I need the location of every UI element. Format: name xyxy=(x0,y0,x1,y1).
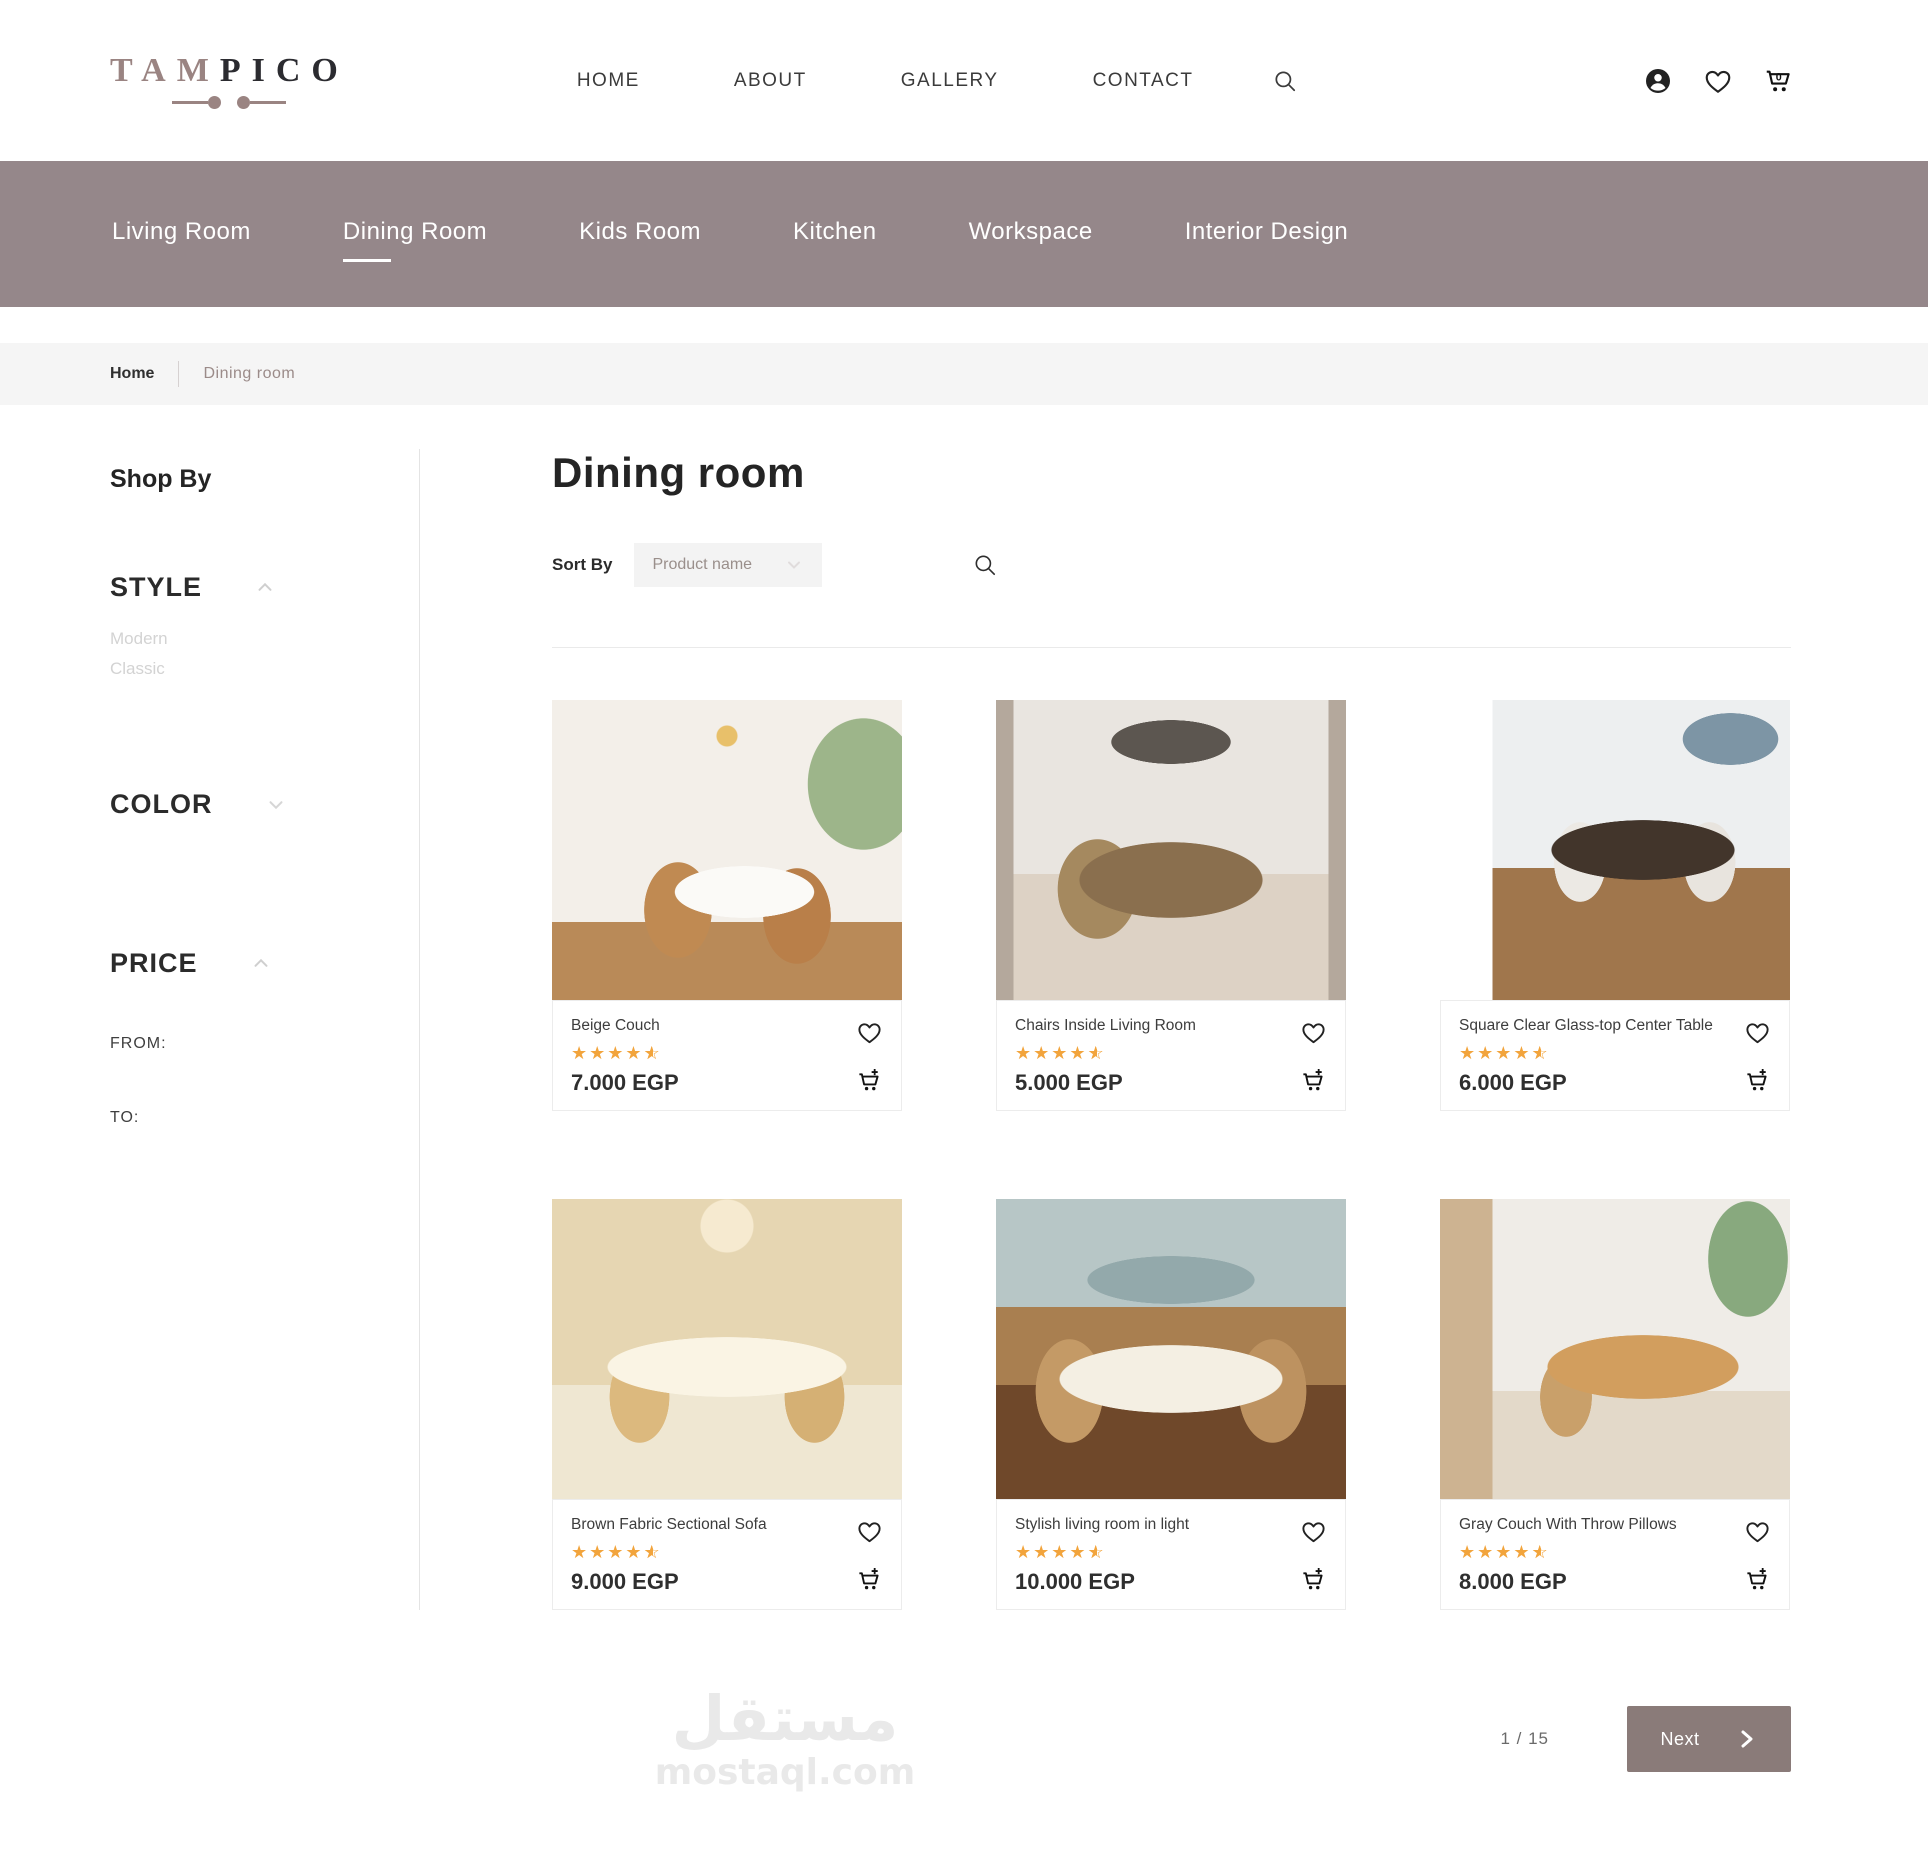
product-image[interactable] xyxy=(996,1199,1346,1499)
rating-stars: ★★★★☆★ xyxy=(1015,1543,1189,1561)
product-image[interactable] xyxy=(996,700,1346,1000)
sort-dropdown[interactable]: Product name xyxy=(634,543,822,587)
product-grid: Beige Couch ★★★★☆★ 7.000 EGP xyxy=(552,700,1791,1610)
add-to-cart-button[interactable] xyxy=(856,1566,883,1593)
product-info: Stylish living room in light ★★★★☆★ 10.0… xyxy=(996,1499,1346,1610)
product-card[interactable]: Beige Couch ★★★★☆★ 7.000 EGP xyxy=(552,700,902,1111)
color-section-toggle[interactable]: COLOR xyxy=(110,789,419,820)
breadcrumb: Home Dining room xyxy=(0,343,1928,405)
category-kids-room[interactable]: Kids Room xyxy=(579,218,701,250)
add-to-cart-button[interactable] xyxy=(1744,1067,1771,1094)
brand-name-primary: TAM xyxy=(110,52,220,89)
shop-by-title: Shop By xyxy=(110,465,419,494)
cart-icon[interactable]: 0 xyxy=(1763,66,1793,96)
section-divider xyxy=(552,647,1791,648)
brand-logo[interactable]: TAMPICO xyxy=(110,52,349,109)
sort-selected-value: Product name xyxy=(652,556,752,574)
rating-stars: ★★★★☆★ xyxy=(1459,1044,1713,1062)
category-workspace[interactable]: Workspace xyxy=(969,218,1093,250)
filter-section-style: STYLE Modern Classic xyxy=(110,572,419,679)
product-info: Brown Fabric Sectional Sofa ★★★★☆★ 9.000… xyxy=(552,1499,902,1610)
wishlist-heart-icon[interactable] xyxy=(1703,66,1733,96)
account-icon[interactable] xyxy=(1643,66,1673,96)
breadcrumb-divider xyxy=(178,361,179,387)
nav-link-home[interactable]: HOME xyxy=(577,70,640,92)
next-page-button[interactable]: Next xyxy=(1627,1706,1791,1772)
product-card[interactable]: Stylish living room in light ★★★★☆★ 10.0… xyxy=(996,1199,1346,1610)
favorite-heart-button[interactable] xyxy=(1300,1019,1327,1046)
chevron-up-icon xyxy=(254,577,276,599)
add-to-cart-button[interactable] xyxy=(1744,1566,1771,1593)
product-card[interactable]: Square Clear Glass-top Center Table ★★★★… xyxy=(1440,700,1790,1111)
arrow-right-icon xyxy=(1734,1727,1758,1751)
add-to-cart-button[interactable] xyxy=(1300,1566,1327,1593)
product-image[interactable] xyxy=(1440,700,1790,1000)
product-title: Stylish living room in light xyxy=(1015,1516,1189,1534)
category-navigation: Living Room Dining Room Kids Room Kitche… xyxy=(0,161,1928,307)
next-label: Next xyxy=(1660,1729,1699,1750)
brand-name: TAMPICO xyxy=(110,52,349,90)
header-action-icons: 0 xyxy=(1643,66,1793,96)
active-category-underline xyxy=(343,259,391,262)
cart-count-badge: 0 xyxy=(1776,71,1782,83)
product-price: 6.000 EGP xyxy=(1459,1070,1713,1096)
category-kitchen[interactable]: Kitchen xyxy=(793,218,877,250)
chevron-down-icon xyxy=(784,555,804,575)
style-section-toggle[interactable]: STYLE xyxy=(110,572,419,603)
favorite-heart-button[interactable] xyxy=(1744,1019,1771,1046)
rating-stars: ★★★★☆★ xyxy=(571,1543,767,1561)
chevron-up-icon xyxy=(250,953,272,975)
category-living-room[interactable]: Living Room xyxy=(112,218,251,250)
nav-link-gallery[interactable]: GALLERY xyxy=(901,70,999,92)
product-info: Gray Couch With Throw Pillows ★★★★☆★ 8.0… xyxy=(1440,1499,1790,1610)
product-title: Square Clear Glass-top Center Table xyxy=(1459,1017,1713,1035)
nav-link-about[interactable]: ABOUT xyxy=(734,70,807,92)
brand-name-secondary: PICO xyxy=(220,52,349,89)
rating-stars: ★★★★☆★ xyxy=(1459,1543,1677,1561)
breadcrumb-home[interactable]: Home xyxy=(110,365,154,383)
price-section-toggle[interactable]: PRICE xyxy=(110,948,419,979)
ornament-dot xyxy=(208,96,221,109)
price-to-label: TO: xyxy=(110,1109,419,1127)
main-panel: Dining room Sort By Product name Beige C… xyxy=(552,449,1791,1610)
product-price: 7.000 EGP xyxy=(571,1070,679,1096)
category-interior-design[interactable]: Interior Design xyxy=(1185,218,1349,250)
style-option-modern[interactable]: Modern xyxy=(110,629,419,649)
chevron-down-icon xyxy=(265,794,287,816)
favorite-heart-button[interactable] xyxy=(856,1518,883,1545)
product-search-icon[interactable] xyxy=(972,552,998,578)
rating-stars: ★★★★☆★ xyxy=(1015,1044,1196,1062)
sort-row: Sort By Product name xyxy=(552,543,1791,587)
product-title: Gray Couch With Throw Pillows xyxy=(1459,1516,1677,1534)
product-info: Beige Couch ★★★★☆★ 7.000 EGP xyxy=(552,1000,902,1111)
product-price: 8.000 EGP xyxy=(1459,1569,1677,1595)
ornament-dot xyxy=(237,96,250,109)
filter-section-color: COLOR xyxy=(110,789,419,820)
product-title: Chairs Inside Living Room xyxy=(1015,1017,1196,1035)
style-option-classic[interactable]: Classic xyxy=(110,659,419,679)
product-image[interactable] xyxy=(552,1199,902,1499)
page-title: Dining room xyxy=(552,449,1791,497)
price-from-label: FROM: xyxy=(110,1035,419,1053)
add-to-cart-button[interactable] xyxy=(1300,1067,1327,1094)
ornament-line xyxy=(172,101,208,104)
product-image[interactable] xyxy=(1440,1199,1790,1499)
nav-link-contact[interactable]: CONTACT xyxy=(1093,70,1194,92)
product-card[interactable]: Gray Couch With Throw Pillows ★★★★☆★ 8.0… xyxy=(1440,1199,1790,1610)
product-info: Chairs Inside Living Room ★★★★☆★ 5.000 E… xyxy=(996,1000,1346,1111)
product-price: 9.000 EGP xyxy=(571,1569,767,1595)
favorite-heart-button[interactable] xyxy=(856,1019,883,1046)
filter-sidebar: Shop By STYLE Modern Classic COLOR PRICE… xyxy=(110,449,420,1610)
product-price: 10.000 EGP xyxy=(1015,1569,1189,1595)
product-title: Beige Couch xyxy=(571,1017,679,1035)
add-to-cart-button[interactable] xyxy=(856,1067,883,1094)
content-area: Shop By STYLE Modern Classic COLOR PRICE… xyxy=(0,405,1928,1610)
product-card[interactable]: Chairs Inside Living Room ★★★★☆★ 5.000 E… xyxy=(996,700,1346,1111)
search-icon[interactable] xyxy=(1272,68,1298,94)
site-header: TAMPICO HOME ABOUT GALLERY CONTACT xyxy=(0,0,1928,161)
filter-section-price: PRICE FROM: TO: xyxy=(110,948,419,1127)
favorite-heart-button[interactable] xyxy=(1300,1518,1327,1545)
top-navigation: HOME ABOUT GALLERY CONTACT xyxy=(577,70,1194,92)
sort-by-label: Sort By xyxy=(552,555,612,575)
favorite-heart-button[interactable] xyxy=(1744,1518,1771,1545)
category-dining-room[interactable]: Dining Room xyxy=(343,218,487,250)
product-title: Brown Fabric Sectional Sofa xyxy=(571,1516,767,1534)
product-price: 5.000 EGP xyxy=(1015,1070,1196,1096)
rating-stars: ★★★★☆★ xyxy=(571,1044,679,1062)
logo-ornament xyxy=(110,96,349,109)
product-info: Square Clear Glass-top Center Table ★★★★… xyxy=(1440,1000,1790,1111)
breadcrumb-current[interactable]: Dining room xyxy=(203,365,295,383)
product-image[interactable] xyxy=(552,700,902,1000)
pagination: 1 / 15 Next xyxy=(0,1706,1928,1772)
page-indicator: 1 / 15 xyxy=(1500,1729,1549,1749)
ornament-line xyxy=(250,101,286,104)
product-card[interactable]: Brown Fabric Sectional Sofa ★★★★☆★ 9.000… xyxy=(552,1199,902,1610)
